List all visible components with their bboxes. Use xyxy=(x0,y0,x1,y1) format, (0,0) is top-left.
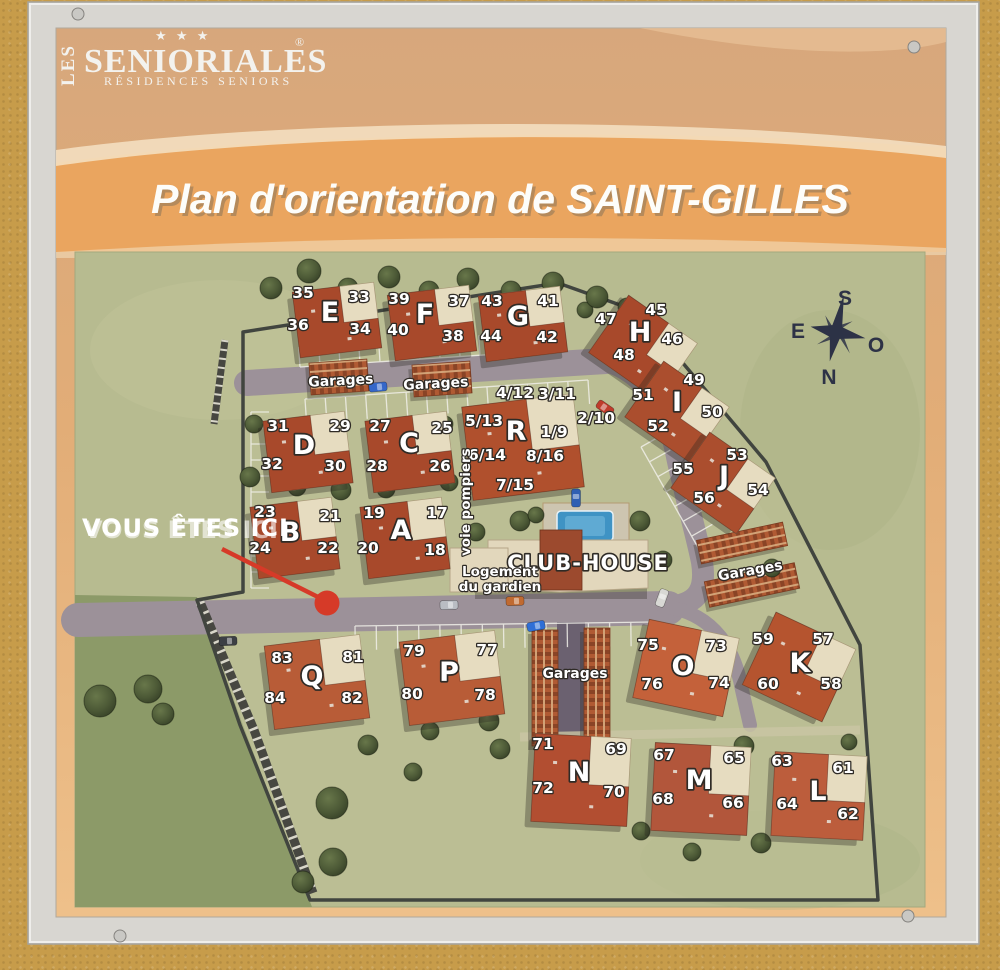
unit-number: 55 xyxy=(672,460,694,478)
unit-number: 78 xyxy=(474,686,496,704)
unit-number: 49 xyxy=(683,371,705,389)
compass-label-e: E xyxy=(791,320,805,343)
unit-number: 26 xyxy=(429,457,451,475)
building-letter: Q xyxy=(301,661,324,692)
roof-window xyxy=(286,668,290,671)
unit-number: 34 xyxy=(349,320,371,338)
you-are-here-label: VOUS ÊTES ICI xyxy=(82,513,289,542)
unit-number: 67 xyxy=(653,746,675,764)
site-map: 3536333439403738434441424748454651524950… xyxy=(75,252,925,910)
unit-number: 40 xyxy=(387,321,409,339)
logo-reg-icon: ® xyxy=(295,35,304,49)
unit-number: 76 xyxy=(641,675,663,693)
roof-window xyxy=(709,814,713,817)
tree-icon xyxy=(358,735,378,755)
garage-row xyxy=(580,628,610,748)
unit-number: 8/16 xyxy=(526,447,564,465)
tree-icon xyxy=(297,259,321,283)
logo-subtitle: RÉSIDENCES SENIORS xyxy=(104,74,293,88)
guard-house-label-1: Logement xyxy=(462,564,539,580)
unit-number: 18 xyxy=(424,541,446,559)
building-letter: G xyxy=(507,301,529,332)
garages-label: Garages xyxy=(542,666,607,682)
unit-number: 74 xyxy=(708,674,730,692)
unit-number: 80 xyxy=(401,685,423,703)
logo-stars-icon: ★ ★ ★ xyxy=(155,28,211,43)
roof-window xyxy=(421,471,425,474)
building-letter: M xyxy=(686,765,713,796)
unit-number: 62 xyxy=(837,805,859,823)
roof-window xyxy=(827,820,831,823)
unit-number: 19 xyxy=(363,504,385,522)
car-windshield xyxy=(514,598,519,605)
unit-number: 81 xyxy=(342,648,364,666)
roof-window xyxy=(319,471,323,474)
tree-icon xyxy=(683,843,701,861)
building-letter: C xyxy=(399,428,419,459)
car-windshield xyxy=(448,602,453,609)
unit-number: 38 xyxy=(442,327,464,345)
roof-window xyxy=(282,440,286,443)
tree-icon xyxy=(152,703,174,725)
garages-label: Garages xyxy=(403,374,469,393)
unit-number: 25 xyxy=(431,419,453,437)
roof-window xyxy=(553,761,557,764)
unit-number: 61 xyxy=(832,759,854,777)
unit-number: 3/11 xyxy=(538,385,576,403)
unit-number: 72 xyxy=(532,779,554,797)
building-letter: H xyxy=(629,317,652,348)
unit-number: 33 xyxy=(348,288,370,306)
building-letter: O xyxy=(672,651,695,682)
unit-number: 2/10 xyxy=(577,409,615,427)
roof-window xyxy=(673,770,677,773)
tree-icon xyxy=(586,286,608,308)
unit-number: 17 xyxy=(426,504,448,522)
building-letter: I xyxy=(672,387,682,418)
roof-window xyxy=(406,312,410,315)
fire-lane-label: voie pompiers xyxy=(458,448,474,556)
unit-number: 53 xyxy=(726,446,748,464)
car-icon xyxy=(219,636,237,646)
unit-number: 21 xyxy=(319,507,341,525)
unit-number: 29 xyxy=(329,417,351,435)
unit-number: 73 xyxy=(705,637,727,655)
screw-icon xyxy=(908,41,920,53)
photo-of-sign: LES SENIORIALES ® ★ ★ ★ RÉSIDENCES SENIO… xyxy=(0,0,1000,970)
unit-number: 44 xyxy=(480,327,502,345)
unit-number: 32 xyxy=(261,455,283,473)
unit-number: 30 xyxy=(324,457,346,475)
screw-icon xyxy=(114,930,126,942)
screw-icon xyxy=(72,8,84,20)
unit-number: 79 xyxy=(403,642,425,660)
unit-number: 4/12 xyxy=(496,384,534,402)
screw-icon xyxy=(902,910,914,922)
roof-window xyxy=(487,432,491,435)
unit-number: 20 xyxy=(357,539,379,557)
unit-number: 50 xyxy=(701,403,723,421)
compass-label-o: O xyxy=(868,334,884,357)
car-windshield xyxy=(227,638,232,645)
you-are-here-dot xyxy=(315,591,340,616)
tree-icon xyxy=(490,739,510,759)
garages-label: Garages xyxy=(308,371,374,390)
roof-window xyxy=(416,557,420,560)
unit-number: 65 xyxy=(723,749,745,767)
unit-number: 28 xyxy=(366,457,388,475)
unit-number: 84 xyxy=(264,689,286,707)
compass-label-s: S xyxy=(838,287,852,310)
building-letter: F xyxy=(416,299,434,330)
unit-number: 52 xyxy=(647,417,669,435)
unit-number: 59 xyxy=(752,630,774,648)
tree-icon xyxy=(316,787,348,819)
roof-window xyxy=(311,309,315,312)
car-windshield xyxy=(573,494,579,499)
unit-number: 48 xyxy=(613,346,635,364)
tree-icon xyxy=(260,277,282,299)
roof-window xyxy=(421,664,425,667)
car-windshield xyxy=(377,383,383,390)
unit-number: 70 xyxy=(603,783,625,801)
unit-number: 66 xyxy=(722,794,744,812)
building-letter: L xyxy=(809,776,826,807)
unit-number: 7/15 xyxy=(496,476,534,494)
roof-window xyxy=(384,440,388,443)
unit-number: 1/9 xyxy=(540,423,567,441)
unit-number: 64 xyxy=(776,795,798,813)
unit-number: 75 xyxy=(637,636,659,654)
tree-icon xyxy=(510,511,530,531)
unit-number: 57 xyxy=(812,630,834,648)
building-letter: E xyxy=(321,297,339,328)
unit-number: 22 xyxy=(317,539,339,557)
tree-icon xyxy=(292,871,314,893)
roof-window xyxy=(589,805,593,808)
tree-icon xyxy=(134,675,162,703)
unit-number: 83 xyxy=(271,649,293,667)
compass-label-n: N xyxy=(821,366,836,389)
page-title: Plan d'orientation de SAINT-GILLES xyxy=(151,176,849,222)
unit-number: 31 xyxy=(267,417,289,435)
building-letter: J xyxy=(717,461,729,492)
building-letter: D xyxy=(293,430,315,461)
unit-number: 35 xyxy=(292,284,314,302)
tree-icon xyxy=(319,848,347,876)
building-letter: R xyxy=(506,416,527,447)
garage-row xyxy=(528,630,558,750)
building-letter: N xyxy=(568,757,591,788)
unit-number: 69 xyxy=(605,740,627,758)
unit-number: 39 xyxy=(388,290,410,308)
logo-les: LES xyxy=(58,44,79,86)
roof-window xyxy=(329,704,333,707)
unit-number: 51 xyxy=(632,386,654,404)
unit-number: 71 xyxy=(532,735,554,753)
unit-number: 56 xyxy=(693,489,715,507)
tree-icon xyxy=(84,685,116,717)
building-letter: A xyxy=(391,515,412,546)
unit-number: 63 xyxy=(771,752,793,770)
roof-window xyxy=(379,526,383,529)
tree-icon xyxy=(240,467,260,487)
roof-window xyxy=(497,313,501,316)
tree-icon xyxy=(528,507,544,523)
tree-icon xyxy=(841,734,857,750)
unit-number: 82 xyxy=(341,689,363,707)
unit-number: 54 xyxy=(747,481,769,499)
unit-number: 36 xyxy=(287,316,309,334)
garage-roof xyxy=(532,630,558,746)
unit-number: 58 xyxy=(820,675,842,693)
building-letter: K xyxy=(790,648,812,679)
unit-number: 46 xyxy=(661,330,683,348)
garage-roof xyxy=(584,628,610,744)
unit-number: 41 xyxy=(537,292,559,310)
tree-icon xyxy=(378,266,400,288)
roof-window xyxy=(306,557,310,560)
unit-number: 47 xyxy=(595,310,617,328)
unit-number: 43 xyxy=(481,292,503,310)
car-icon xyxy=(440,600,458,610)
unit-number: 37 xyxy=(448,292,470,310)
roof-window xyxy=(537,471,541,474)
unit-number: 60 xyxy=(757,675,779,693)
unit-number: 5/13 xyxy=(465,412,503,430)
building-letter: P xyxy=(439,657,459,688)
car-icon xyxy=(572,489,581,507)
car-icon xyxy=(506,596,524,606)
roof-window xyxy=(464,700,468,703)
main-road xyxy=(78,608,668,620)
tree-icon xyxy=(404,763,422,781)
unit-number: 42 xyxy=(536,328,558,346)
tree-icon xyxy=(630,511,650,531)
unit-number: 68 xyxy=(652,790,674,808)
unit-number: 27 xyxy=(369,417,391,435)
unit-number: 77 xyxy=(476,641,498,659)
roof-window xyxy=(792,778,796,781)
title-group: Plan d'orientation de SAINT-GILLES Plan … xyxy=(151,176,852,225)
guard-house-label-2: du gardien xyxy=(459,579,541,595)
